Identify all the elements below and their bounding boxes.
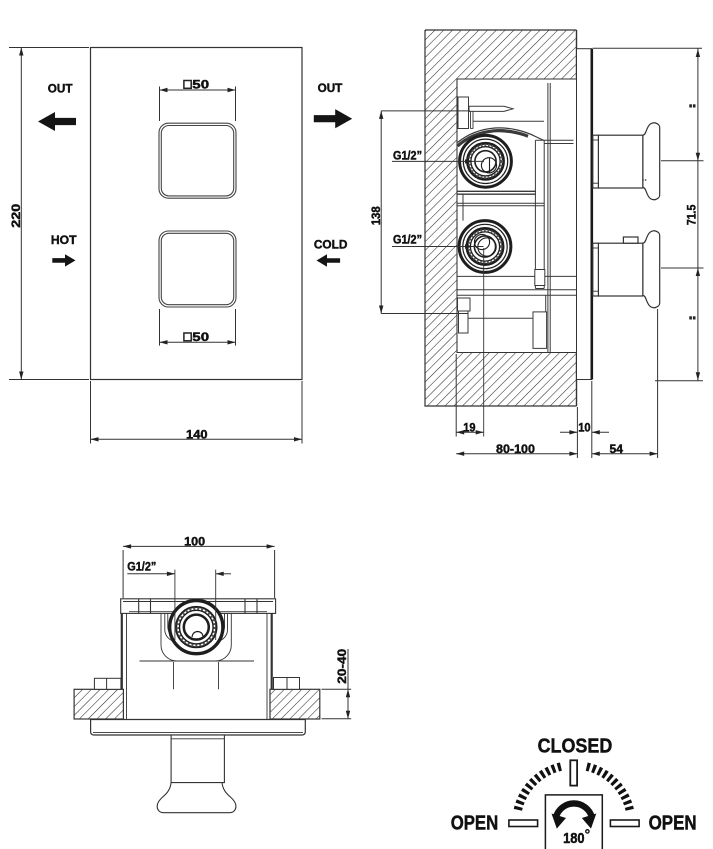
svg-text:19: 19 bbox=[463, 420, 476, 434]
svg-text:180: 180 bbox=[563, 830, 585, 847]
svg-text:OPEN: OPEN bbox=[649, 813, 697, 835]
svg-text:G1/2”: G1/2” bbox=[393, 149, 422, 163]
svg-text:71.5: 71.5 bbox=[684, 204, 698, 225]
svg-text:54: 54 bbox=[610, 442, 624, 456]
svg-text:G1/2”: G1/2” bbox=[127, 560, 156, 574]
svg-text:20-40: 20-40 bbox=[335, 648, 349, 683]
svg-text:50: 50 bbox=[192, 78, 209, 92]
svg-text:50: 50 bbox=[192, 330, 209, 344]
svg-text:OUT: OUT bbox=[48, 82, 73, 96]
svg-text:80-100: 80-100 bbox=[496, 442, 535, 456]
svg-text:HOT: HOT bbox=[51, 233, 77, 247]
svg-text:10: 10 bbox=[578, 420, 591, 434]
svg-text:220: 220 bbox=[9, 203, 23, 227]
svg-text:138: 138 bbox=[369, 206, 383, 225]
svg-text:140: 140 bbox=[186, 428, 208, 442]
svg-text:CLOSED: CLOSED bbox=[538, 736, 613, 758]
svg-text:OPEN: OPEN bbox=[451, 813, 499, 835]
svg-text:OUT: OUT bbox=[318, 81, 343, 95]
svg-text:100: 100 bbox=[184, 535, 205, 549]
svg-text:COLD: COLD bbox=[314, 237, 348, 251]
svg-text:G1/2”: G1/2” bbox=[393, 233, 422, 247]
